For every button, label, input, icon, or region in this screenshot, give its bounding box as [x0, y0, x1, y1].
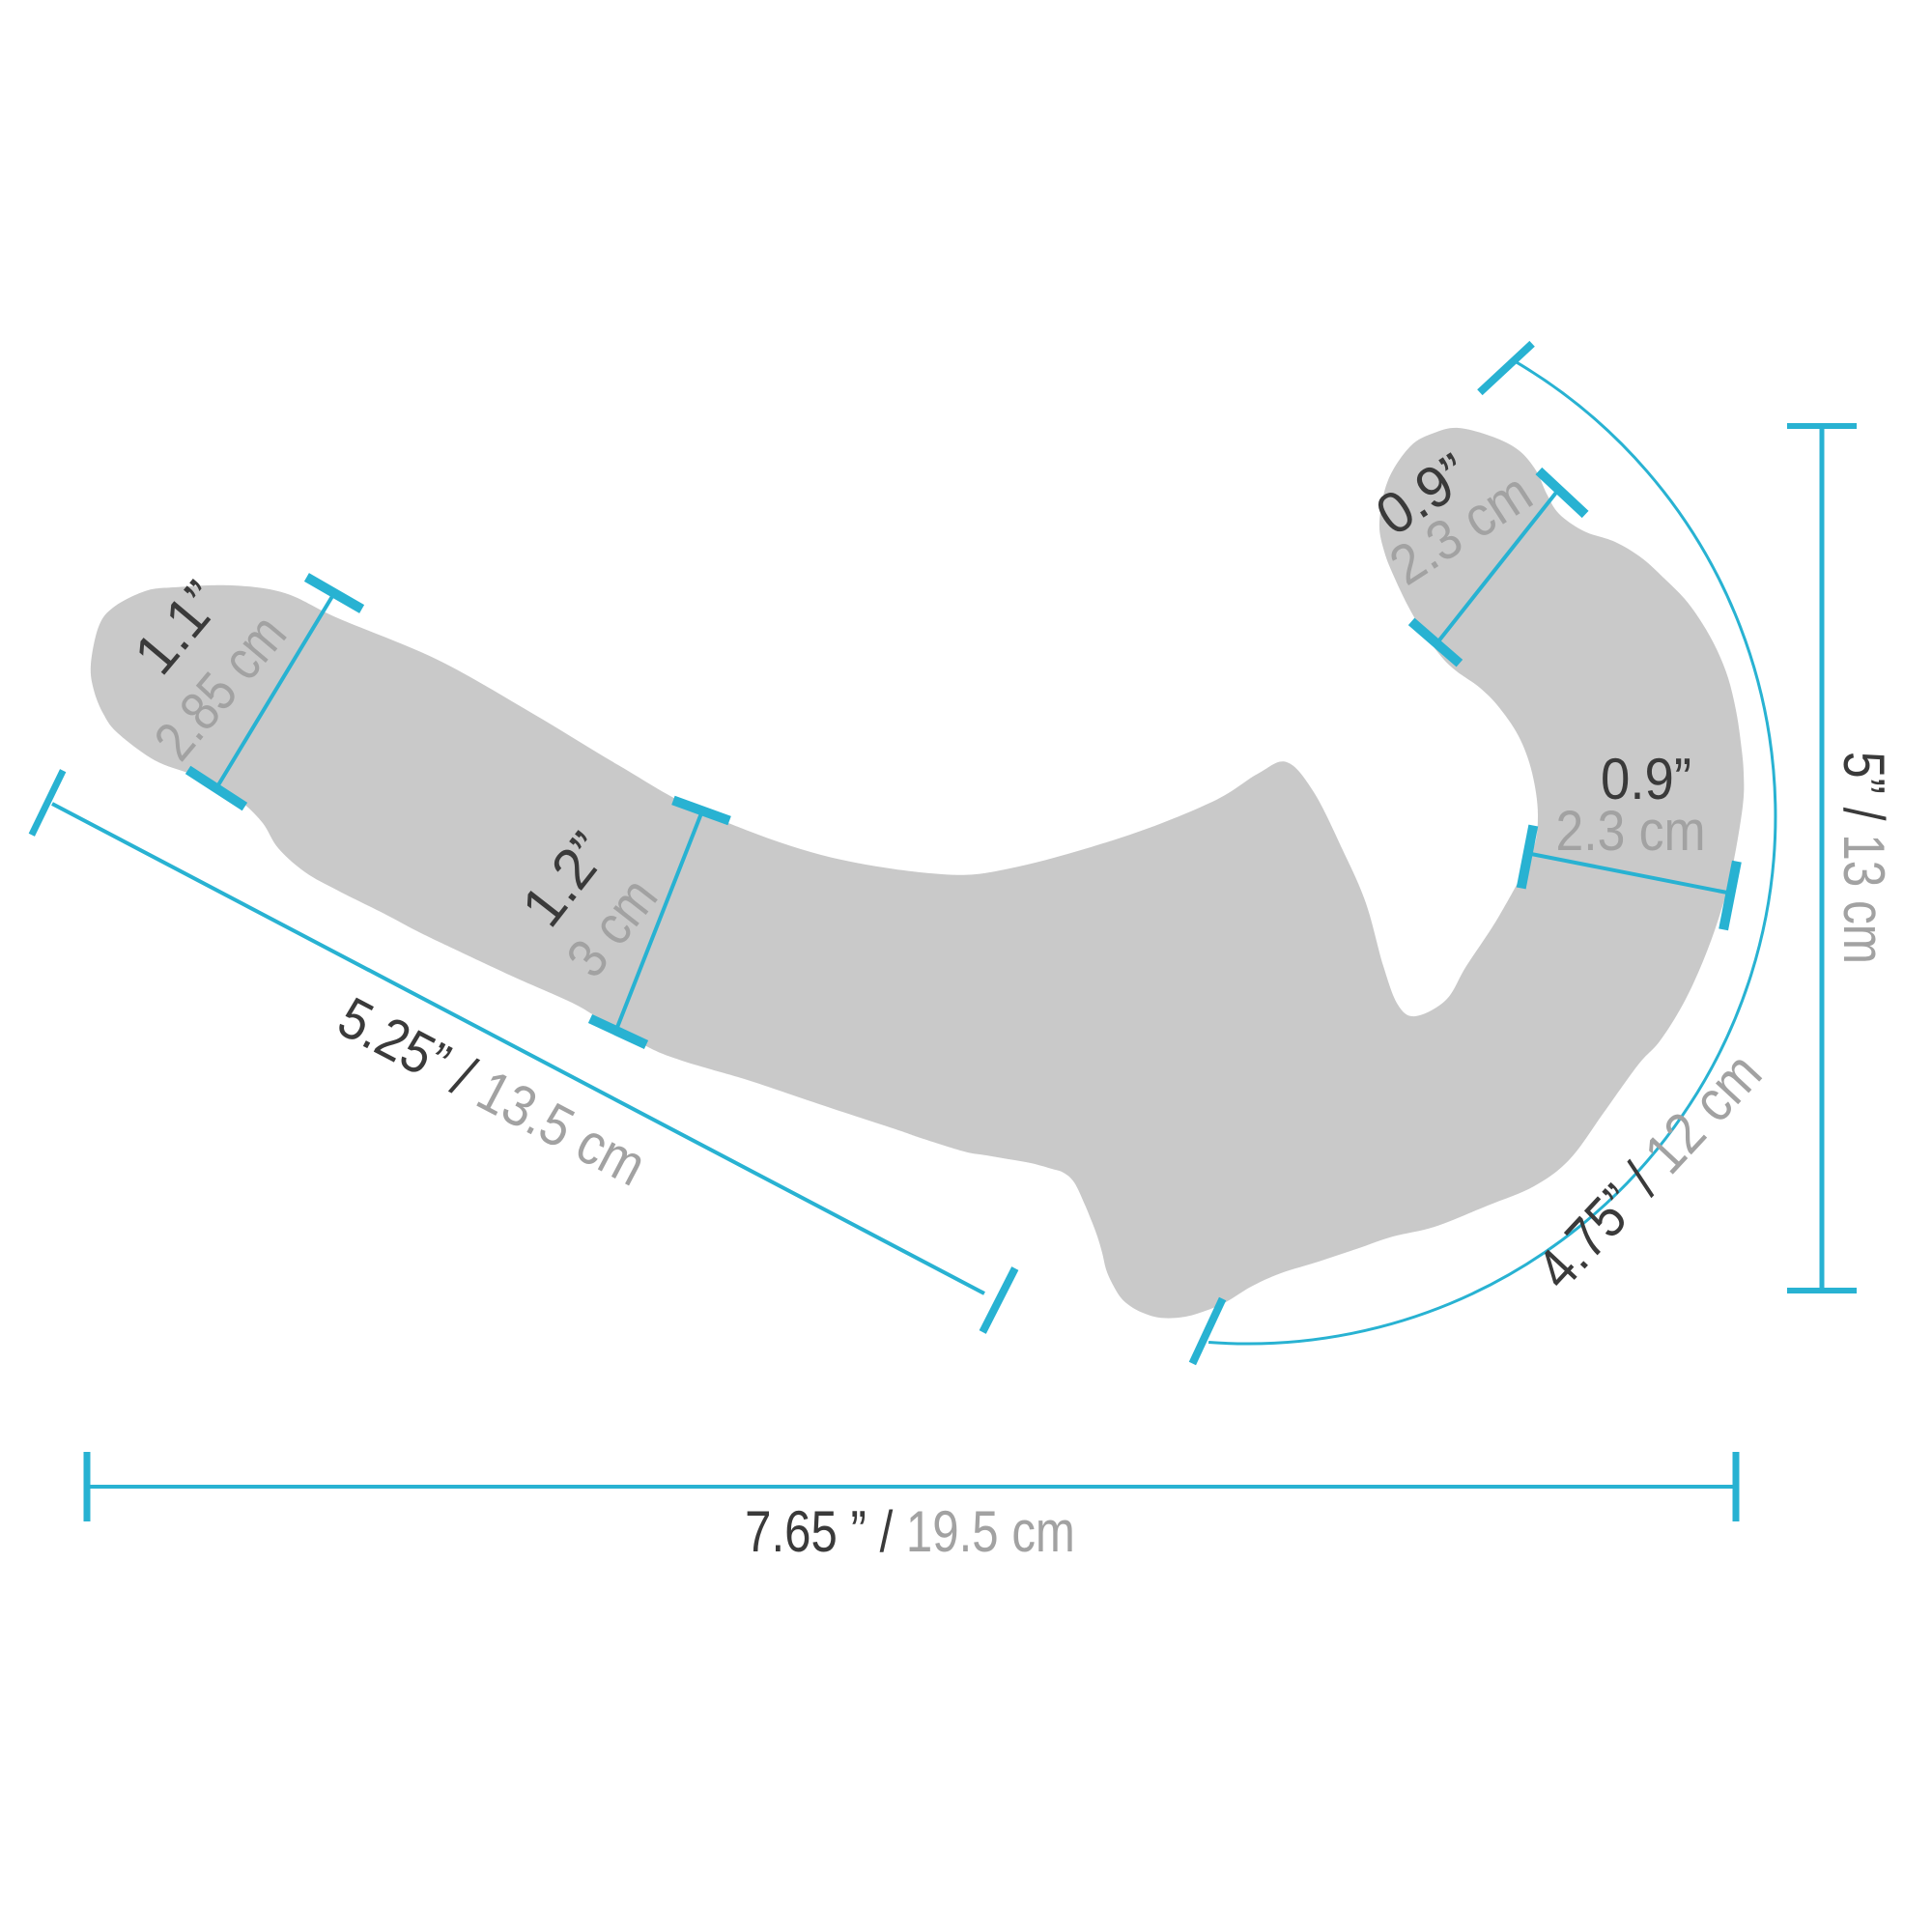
svg-text:5” / 13 cm: 5” / 13 cm: [1832, 752, 1897, 964]
svg-text:2.3 cm: 2.3 cm: [1555, 799, 1705, 862]
svg-text:7.65 ” / 19.5 cm: 7.65 ” / 19.5 cm: [745, 1498, 1075, 1564]
